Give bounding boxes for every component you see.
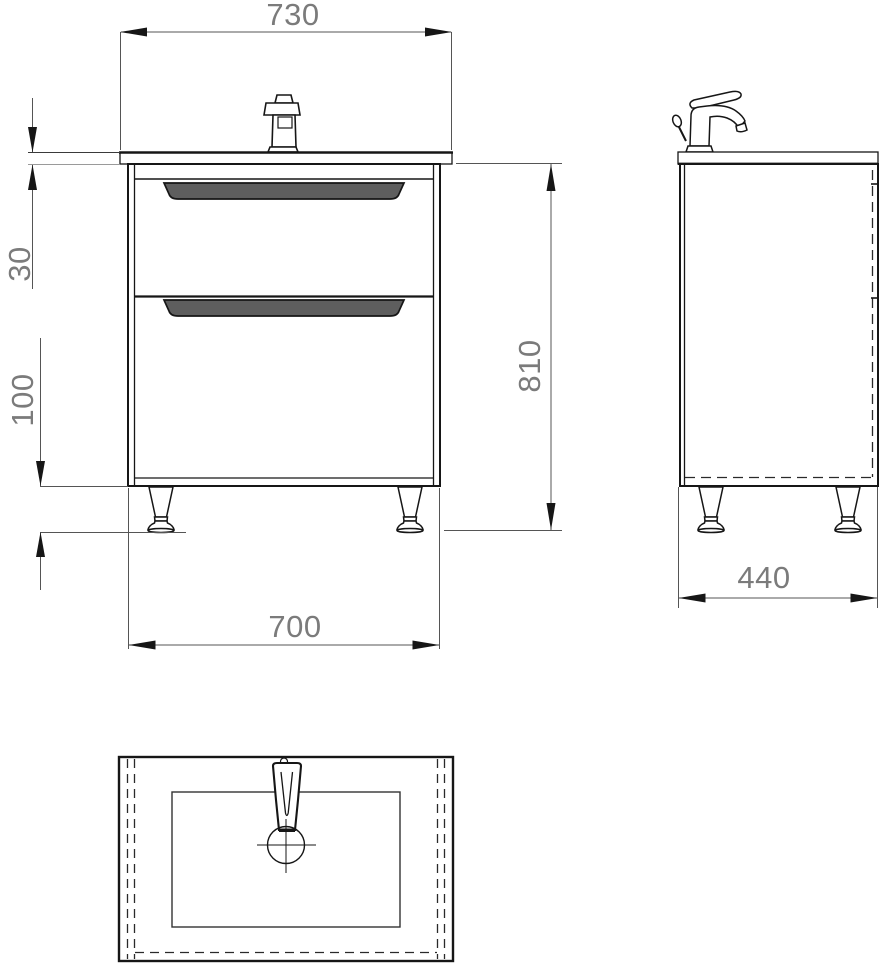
drawer-handle-bottom [164,300,404,316]
arrow-down [28,127,37,153]
leg-foot-base [397,529,423,533]
leg-foot-base [835,529,861,533]
front-worktop [119,152,453,164]
leg-foot-base [148,529,174,533]
dim-cabinet-width: 700 [129,488,440,650]
dim-label-100: 100 [5,373,40,426]
arrow-left [679,594,706,603]
arrow-down [36,461,45,486]
technical-drawing: 730 30 100 810 700 [0,0,883,964]
arrow-up [36,532,45,557]
dim-label-810: 810 [512,339,547,392]
arrow-up [547,164,556,191]
leg-cone [836,487,860,517]
faucet-popup-knob [671,114,683,128]
faucet-front-base [268,147,298,152]
leg-foot-base [698,529,724,533]
top-view [119,757,453,961]
dim-label-30: 30 [2,246,37,281]
dim-worktop-thickness: 30 [2,98,120,289]
dim-label-700: 700 [268,609,321,644]
faucet-front-flange [264,103,300,115]
front-leg-right [397,487,423,533]
side-leg-back [835,487,861,533]
faucet-front-icon [264,95,300,152]
faucet-top-icon [273,758,301,832]
side-worktop-slab [678,152,878,164]
arrow-left [129,641,156,650]
leg-cone [699,487,723,517]
side-worktop [678,152,878,164]
drawing-sheet: 730 30 100 810 700 [0,0,883,964]
leg-cone [398,487,422,517]
arrow-up [28,165,37,191]
faucet-front-detail [278,117,292,128]
front-leg-left [148,487,174,533]
arrow-right [851,594,878,603]
leg-cone [149,487,173,517]
faucet-popup-rod [679,127,686,141]
side-cabinet-outline [680,164,878,486]
dim-label-730: 730 [266,0,319,32]
faucet-top-spout-mark [279,829,295,833]
dim-overall-height: 810 [444,164,562,531]
arrow-down [547,503,556,530]
front-cabinet-outline [128,164,440,486]
drawer-handle-top [164,183,404,199]
faucet-side-icon [671,91,747,152]
side-cabinet [680,164,878,486]
arrow-right [425,28,452,37]
faucet-side-base [686,146,713,152]
arrow-left [120,28,147,37]
front-view [119,95,453,533]
side-leg-front [698,487,724,533]
front-cabinet [128,164,440,486]
dim-label-440: 440 [737,560,790,595]
arrow-right [413,641,440,650]
side-view [671,91,878,532]
faucet-front-cap [275,95,293,103]
